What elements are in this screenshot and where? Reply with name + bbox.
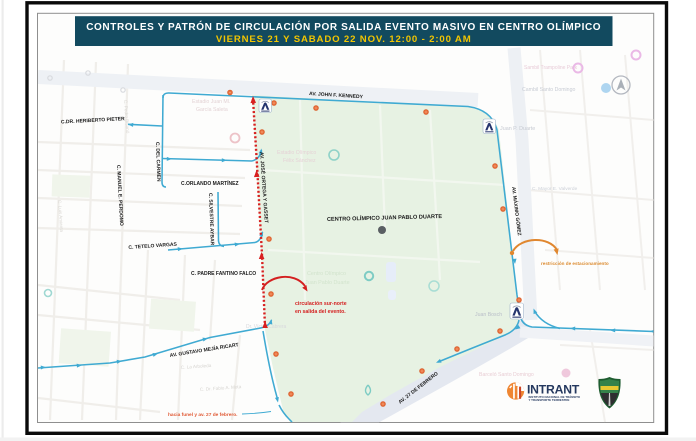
svg-text:Félix Sánchez: Félix Sánchez: [283, 158, 316, 164]
svg-text:C.ORLANDO MARTÍNEZ: C.ORLANDO MARTÍNEZ: [181, 179, 239, 187]
svg-text:Sambil Trampoline Park: Sambil Trampoline Park: [524, 65, 578, 71]
svg-text:hacia funel y av. 27 de febrer: hacia funel y av. 27 de febrero.: [168, 412, 238, 418]
svg-text:restricción de estacionamiento: restricción de estacionamiento: [541, 261, 609, 266]
svg-text:VIERNES 21 Y SABADO 22 NOV. 12: VIERNES 21 Y SABADO 22 NOV. 12:00 - 2:00…: [216, 34, 472, 45]
svg-text:circulación sur-norte: circulación sur-norte: [295, 301, 347, 307]
svg-text:en salida del evento.: en salida del evento.: [295, 309, 346, 315]
svg-text:Estadio Olímpico: Estadio Olímpico: [277, 150, 316, 156]
svg-text:C. Mayor E. Valverde: C. Mayor E. Valverde: [532, 186, 578, 192]
svg-text:Juan P. Duarte: Juan P. Duarte: [500, 126, 535, 132]
svg-text:Centro Olímpico: Centro Olímpico: [307, 271, 346, 277]
svg-text:Cambil Santo Domingo: Cambil Santo Domingo: [522, 87, 575, 93]
svg-text:Juan Bosch: Juan Bosch: [475, 312, 502, 318]
svg-text:Juan Pablo Duarte: Juan Pablo Duarte: [305, 280, 350, 286]
svg-text:Estadio Juan Ml.: Estadio Juan Ml.: [192, 99, 230, 105]
svg-text:C. PADRE FANTINO FALCO: C. PADRE FANTINO FALCO: [191, 271, 256, 277]
svg-text:García Saleta: García Saleta: [196, 107, 228, 113]
svg-text:Barceló Santo Domingo: Barceló Santo Domingo: [479, 372, 534, 378]
svg-text:CONTROLES Y PATRÓN DE CIRCULAC: CONTROLES Y PATRÓN DE CIRCULACIÓN POR SA…: [86, 20, 601, 33]
svg-text:Y TRANSPORTE TERRESTRE: Y TRANSPORTE TERRESTRE: [529, 398, 570, 402]
